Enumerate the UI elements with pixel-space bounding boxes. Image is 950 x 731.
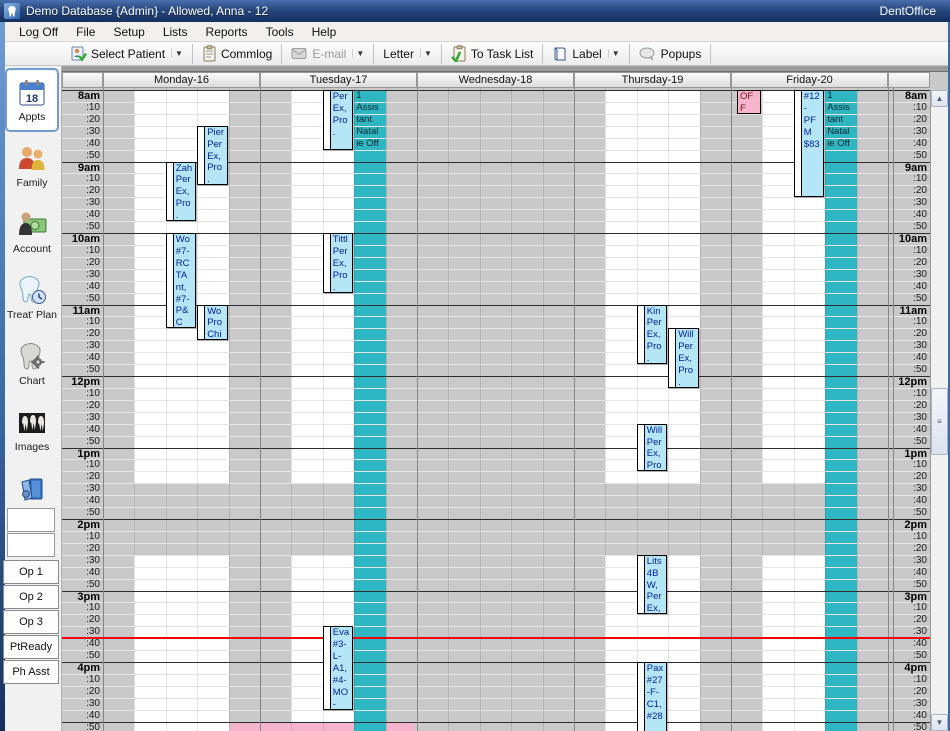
grid-vertical-line — [605, 88, 606, 731]
brand-label: DentOffice — [880, 4, 936, 18]
grid-vertical-line — [668, 88, 669, 731]
grid-minor-line — [62, 686, 930, 687]
appointment-text: Kin Per Ex, Pro . — [644, 306, 666, 364]
time-label-minute: :50 — [62, 650, 100, 662]
time-label-minute: :20 — [62, 543, 100, 555]
grid-vertical-line — [260, 88, 261, 731]
time-label-minute: :20 — [893, 185, 927, 197]
select-patient-button[interactable]: Select Patient ▼ — [64, 44, 189, 64]
grid-vertical-line — [888, 88, 889, 731]
time-label-minute: :30 — [62, 126, 100, 138]
time-label-minute: :10 — [62, 388, 100, 400]
time-label-minute: :20 — [62, 400, 100, 412]
toolbar-separator — [710, 44, 711, 64]
grid-vertical-line — [511, 88, 512, 731]
commlog-label: Commlog — [221, 47, 272, 61]
grid-minor-line — [62, 424, 930, 425]
toolbar-separator — [192, 44, 193, 64]
grid-minor-line — [62, 579, 930, 580]
grid-hour-line — [62, 591, 930, 592]
time-label-minute: :30 — [62, 698, 100, 710]
time-label-minute: :50 — [893, 507, 927, 519]
current-time-line — [62, 637, 930, 639]
grid-minor-line — [62, 328, 930, 329]
appointment[interactable]: Wo Pro Chi — [197, 305, 227, 341]
sidebar-item-label: Treat' Plan — [7, 309, 57, 321]
grid-minor-line — [62, 698, 930, 699]
treatment-plan-icon — [16, 275, 48, 307]
time-label-minute: :40 — [62, 424, 100, 436]
time-label-hour: 3pm — [62, 591, 100, 603]
day-header-friday[interactable]: Friday-20 — [731, 72, 888, 88]
view-slot-empty[interactable] — [7, 508, 55, 532]
sidebar-item-appts[interactable]: 18 Appts — [5, 68, 59, 132]
select-patient-icon — [70, 45, 87, 62]
grid-vertical-line — [574, 88, 575, 731]
grid-vertical-line — [417, 88, 418, 731]
time-label-minute: :50 — [893, 293, 927, 305]
letter-button[interactable]: Letter ▼ — [377, 44, 438, 64]
grid-hour-line — [62, 448, 930, 449]
grid-minor-line — [62, 340, 930, 341]
time-label-minute: :10 — [62, 245, 100, 257]
label-icon — [552, 46, 568, 62]
time-label-minute: :40 — [62, 710, 100, 722]
time-label-minute: :30 — [893, 483, 927, 495]
time-label-minute: :20 — [62, 257, 100, 269]
time-label-hour: 4pm — [62, 662, 100, 674]
day-header-monday[interactable]: Monday-16 — [103, 72, 260, 88]
window-title: Demo Database {Admin} - Allowed, Anna - … — [26, 4, 268, 18]
email-button[interactable]: E-mail ▼ — [285, 44, 370, 64]
time-label-minute: :40 — [893, 567, 927, 579]
grid-minor-line — [62, 352, 930, 353]
scrollbar-down-arrow-icon[interactable]: ▼ — [931, 714, 948, 731]
time-label-minute: :50 — [893, 221, 927, 233]
menu-help[interactable]: Help — [303, 23, 346, 41]
appointment-text: Per Ex, Pro . — [330, 91, 352, 149]
grid-vertical-line — [762, 88, 763, 731]
appointment-text: Pax #27 -F- C1, #28 — [644, 663, 666, 731]
appointment-text: Zah Per Ex, Pro . — [173, 163, 195, 221]
blockout-label: 1 Assis tant Natal ie Off — [356, 90, 384, 152]
time-label-minute: :40 — [62, 567, 100, 579]
grid-hour-line — [62, 722, 930, 723]
dentoffice-window: Demo Database {Admin} - Allowed, Anna - … — [0, 0, 950, 731]
appointments-calendar-icon: 18 — [16, 77, 48, 109]
time-label-minute: :10 — [62, 173, 100, 185]
time-label-minute: :10 — [62, 316, 100, 328]
commlog-button[interactable]: Commlog — [196, 44, 278, 64]
time-label-hour: 2pm — [893, 519, 927, 531]
grid-minor-line — [62, 674, 930, 675]
time-label-minute: :10 — [893, 459, 927, 471]
time-label-minute: :10 — [62, 102, 100, 114]
tooth-logo-icon — [4, 3, 20, 19]
time-label-minute: :50 — [62, 579, 100, 591]
time-label-minute: :50 — [893, 150, 927, 162]
menu-setup[interactable]: Setup — [104, 23, 153, 41]
grid-minor-line — [62, 483, 930, 484]
time-label-hour: 9am — [62, 162, 100, 174]
time-label-minute: :20 — [62, 185, 100, 197]
select-patient-label: Select Patient — [91, 47, 165, 61]
sidebar-item-label: Family — [17, 177, 48, 189]
time-label-minute: :20 — [893, 614, 927, 626]
grid-vertical-line — [637, 88, 638, 731]
sidebar-item-label: Account — [13, 243, 51, 255]
grid-minor-line — [62, 555, 930, 556]
time-label-minute: :30 — [893, 412, 927, 424]
time-label-minute: :30 — [62, 483, 100, 495]
grid-minor-line — [62, 459, 930, 460]
appointment[interactable]: Zah Per Ex, Pro . — [166, 162, 196, 222]
time-label-minute: :40 — [62, 281, 100, 293]
view-button-op1[interactable]: Op 1 — [3, 560, 59, 584]
time-label-minute: :10 — [62, 602, 100, 614]
time-label-minute: :40 — [893, 281, 927, 293]
appointment[interactable]: Per Ex, Pro . — [323, 90, 353, 150]
grid-minor-line — [62, 388, 930, 389]
appointment[interactable]: Wo #7- RC TA nt, #7- P& C — [166, 233, 196, 328]
grid-hour-line — [62, 376, 930, 377]
sidebar-item-chart[interactable]: Chart — [5, 332, 59, 396]
appointment[interactable]: Kin Per Ex, Pro . — [637, 305, 667, 365]
time-label-minute: :50 — [62, 221, 100, 233]
to-task-list-label: To Task List — [471, 47, 533, 61]
time-label-minute: :40 — [893, 424, 927, 436]
time-label-hour: 4pm — [893, 662, 927, 674]
time-label-minute: :30 — [893, 126, 927, 138]
grid-minor-line — [62, 567, 930, 568]
time-label-minute: :10 — [62, 531, 100, 543]
letter-label: Letter — [383, 47, 414, 61]
time-label-minute: :30 — [62, 412, 100, 424]
grid-vertical-line — [386, 88, 387, 731]
time-label-minute: :20 — [893, 471, 927, 483]
time-label-minute: :20 — [893, 114, 927, 126]
time-label-minute: :40 — [893, 352, 927, 364]
appointment[interactable]: Eva #3- L- A1, #4- MO - — [323, 626, 353, 709]
time-label-minute: :40 — [62, 209, 100, 221]
time-label-minute: :30 — [62, 269, 100, 281]
popups-icon — [639, 47, 657, 61]
title-bar[interactable]: Demo Database {Admin} - Allowed, Anna - … — [0, 0, 950, 22]
time-label-minute: :10 — [893, 388, 927, 400]
popups-label: Popups — [661, 47, 702, 61]
time-label-minute: :30 — [893, 340, 927, 352]
family-icon — [16, 143, 48, 175]
grid-vertical-line — [825, 88, 826, 731]
sidebar-item-treat-plan[interactable]: Treat' Plan — [5, 266, 59, 330]
toolbar: Select Patient ▼ Commlog E-mail ▼ Letter… — [0, 42, 950, 66]
time-label-hour: 2pm — [62, 519, 100, 531]
view-button-ptready[interactable]: PtReady — [3, 635, 59, 659]
time-label-minute: :50 — [893, 436, 927, 448]
grid-minor-line — [62, 543, 930, 544]
time-label-minute: :40 — [893, 638, 927, 650]
time-label-minute: :30 — [62, 197, 100, 209]
menu-lists[interactable]: Lists — [154, 23, 197, 41]
scrollbar-thumb[interactable]: ≡ — [931, 388, 948, 455]
grid-hour-line — [62, 662, 930, 663]
time-label-hour: 12pm — [62, 376, 100, 388]
time-label-hour: 1pm — [893, 448, 927, 460]
grid-minor-line — [62, 650, 930, 651]
account-icon — [16, 209, 48, 241]
day-header-thursday[interactable]: Thursday-19 — [574, 72, 731, 88]
view-button-op2[interactable]: Op 2 — [3, 585, 59, 609]
grid-minor-line — [62, 602, 930, 603]
time-column-header — [62, 72, 103, 88]
dropdown-arrow-icon[interactable]: ▼ — [420, 49, 432, 58]
appointment-text: Lits 4B W, Per Ex, — [644, 556, 666, 614]
time-label-minute: :40 — [893, 209, 927, 221]
time-label-minute: :10 — [893, 602, 927, 614]
svg-text:18: 18 — [26, 93, 38, 105]
time-label-minute: :10 — [62, 459, 100, 471]
grid-minor-line — [62, 531, 930, 532]
appointment-text: Pier Per Ex, Pro . — [204, 127, 226, 185]
time-label-minute: :20 — [893, 543, 927, 555]
time-label-minute: :30 — [62, 340, 100, 352]
grid-vertical-line — [448, 88, 449, 731]
appointment-text: Wo Pro Chi — [204, 306, 226, 340]
grid-vertical-line — [480, 88, 481, 731]
time-label-hour: 8am — [62, 90, 100, 102]
time-label-hour: 9am — [893, 162, 927, 174]
time-label-minute: :40 — [62, 495, 100, 507]
time-label-hour: 11am — [893, 305, 927, 317]
time-label-minute: :10 — [893, 245, 927, 257]
time-label-minute: :20 — [62, 614, 100, 626]
manage-icon — [16, 473, 48, 505]
grid-minor-line — [62, 626, 930, 627]
time-label-minute: :30 — [893, 698, 927, 710]
task-list-icon — [451, 45, 467, 62]
time-label-minute: :10 — [62, 674, 100, 686]
toolbar-separator — [542, 44, 543, 64]
time-label-minute: :20 — [893, 400, 927, 412]
time-label-minute: :30 — [62, 626, 100, 638]
time-label-minute: :10 — [893, 674, 927, 686]
to-task-list-button[interactable]: To Task List — [445, 44, 539, 64]
appointment[interactable]: Pier Per Ex, Pro . — [197, 126, 227, 186]
time-column-header — [888, 72, 930, 88]
commlog-icon — [202, 45, 217, 62]
label-button[interactable]: Label ▼ — [546, 44, 625, 64]
blockout[interactable]: OF F — [737, 90, 761, 114]
day-header-wednesday[interactable]: Wednesday-18 — [417, 72, 574, 88]
toolbar-separator — [373, 44, 374, 64]
time-label-minute: :20 — [62, 328, 100, 340]
time-label-minute: :30 — [893, 555, 927, 567]
menu-log-off[interactable]: Log Off — [10, 23, 67, 41]
time-label-hour: 8am — [893, 90, 927, 102]
time-label-minute: :30 — [893, 626, 927, 638]
time-label-minute: :20 — [62, 686, 100, 698]
time-label-minute: :40 — [893, 495, 927, 507]
grid-vertical-line — [543, 88, 544, 731]
sidebar-item-family[interactable]: Family — [5, 134, 59, 198]
time-label-minute: :20 — [62, 471, 100, 483]
appointment[interactable]: Pax #27 -F- C1, #28 — [637, 662, 667, 731]
time-label-minute: :30 — [62, 555, 100, 567]
time-label-minute: :10 — [893, 316, 927, 328]
time-label-minute: :10 — [893, 102, 927, 114]
day-header-tuesday[interactable]: Tuesday-17 — [260, 72, 417, 88]
time-label-minute: :20 — [893, 686, 927, 698]
schedule-grid[interactable]: 1 Assis tant Natal ie Off1 Assis tant Na… — [62, 88, 950, 731]
grid-minor-line — [62, 400, 930, 401]
toolbar-separator — [441, 44, 442, 64]
time-label-minute: :40 — [893, 138, 927, 150]
sidebar-item-label: Images — [15, 441, 49, 453]
menu-file[interactable]: File — [67, 23, 104, 41]
grid-vertical-line — [229, 88, 230, 731]
grid-vertical-line — [134, 88, 135, 731]
scrollbar-up-arrow-icon[interactable]: ▲ — [931, 90, 948, 107]
sidebar-item-label: Chart — [19, 375, 45, 387]
time-label-minute: :50 — [893, 722, 927, 731]
menu-tools[interactable]: Tools — [257, 23, 303, 41]
appointment-text: Wo #7- RC TA nt, #7- P& C — [173, 234, 195, 327]
blockout-label: 1 Assis tant Natal ie Off — [827, 90, 855, 152]
popups-button[interactable]: Popups — [633, 44, 708, 64]
appointment-text: Eva #3- L- A1, #4- MO - — [330, 627, 352, 708]
grid-minor-line — [62, 614, 930, 615]
toolbar-separator — [281, 44, 282, 64]
appointment-text: #12 - PF M $83 — [801, 91, 823, 196]
grid-minor-line — [62, 221, 930, 222]
grid-vertical-line — [354, 88, 355, 731]
grid-vertical-line — [731, 88, 732, 731]
time-label-minute: :50 — [893, 579, 927, 591]
time-label-minute: :40 — [62, 138, 100, 150]
appointment[interactable]: Will Per Ex, Pro . — [668, 328, 698, 388]
grid-minor-line — [62, 507, 930, 508]
time-label-minute: :10 — [893, 173, 927, 185]
appointment[interactable]: Lits 4B W, Per Ex, — [637, 555, 667, 615]
grid-minor-line — [62, 364, 930, 365]
grid-vertical-line — [103, 88, 104, 731]
appointment-text: Tittl Per Ex, Pro . — [330, 234, 352, 292]
time-label-minute: :50 — [893, 650, 927, 662]
time-label-minute: :50 — [62, 507, 100, 519]
view-button-phasst[interactable]: Ph Asst — [3, 660, 59, 684]
sidebar-item-account[interactable]: Account — [5, 200, 59, 264]
dropdown-arrow-icon[interactable]: ▼ — [352, 49, 364, 58]
time-label-minute: :50 — [62, 364, 100, 376]
grid-minor-line — [62, 412, 930, 413]
email-icon — [291, 47, 308, 60]
dropdown-arrow-icon[interactable]: ▼ — [171, 49, 183, 58]
sidebar-item-images[interactable]: Images — [5, 398, 59, 462]
time-label-hour: 1pm — [62, 448, 100, 460]
sidebar-item-label: Appts — [19, 111, 46, 123]
time-label-minute: :30 — [893, 197, 927, 209]
time-label-hour: 11am — [62, 305, 100, 317]
time-label-minute: :40 — [62, 352, 100, 364]
label-label: Label — [572, 47, 601, 61]
chart-tooth-icon — [16, 341, 48, 373]
grid-minor-line — [62, 710, 930, 711]
time-label-minute: :30 — [893, 269, 927, 281]
time-label-minute: :10 — [893, 531, 927, 543]
time-label-minute: :20 — [893, 257, 927, 269]
time-label-minute: :50 — [62, 436, 100, 448]
time-label-hour: 10am — [62, 233, 100, 245]
time-label-minute: :20 — [893, 328, 927, 340]
time-label-hour: 10am — [893, 233, 927, 245]
dropdown-arrow-icon[interactable]: ▼ — [608, 49, 620, 58]
grid-hour-line — [62, 519, 930, 520]
appointment[interactable]: Will Per Ex, Pro . — [637, 424, 667, 472]
grid-minor-line — [62, 436, 930, 437]
appointment[interactable]: #12 - PF M $83 — [794, 90, 824, 197]
grid-minor-line — [62, 471, 930, 472]
time-label-minute: :50 — [62, 150, 100, 162]
grid-vertical-line — [291, 88, 292, 731]
appointment[interactable]: Tittl Per Ex, Pro . — [323, 233, 353, 293]
view-button-op3[interactable]: Op 3 — [3, 610, 59, 634]
menu-bar: Log Off File Setup Lists Reports Tools H… — [0, 22, 950, 42]
images-xray-icon — [16, 407, 48, 439]
grid-minor-line — [62, 495, 930, 496]
toolbar-separator — [629, 44, 630, 64]
view-slot-empty[interactable] — [7, 533, 55, 557]
time-label-minute: :50 — [62, 293, 100, 305]
time-label-minute: :40 — [893, 710, 927, 722]
time-label-minute: :50 — [893, 364, 927, 376]
time-label-minute: :20 — [62, 114, 100, 126]
time-label-minute: :50 — [62, 722, 100, 731]
email-label: E-mail — [312, 47, 346, 61]
appointment-text: Will Per Ex, Pro . — [644, 425, 666, 471]
appointment-text: Will Per Ex, Pro . — [675, 329, 697, 387]
time-label-hour: 3pm — [893, 591, 927, 603]
grid-vertical-line — [700, 88, 701, 731]
menu-reports[interactable]: Reports — [197, 23, 257, 41]
time-label-hour: 12pm — [893, 376, 927, 388]
time-label-minute: :40 — [62, 638, 100, 650]
grid-vertical-line — [857, 88, 858, 731]
